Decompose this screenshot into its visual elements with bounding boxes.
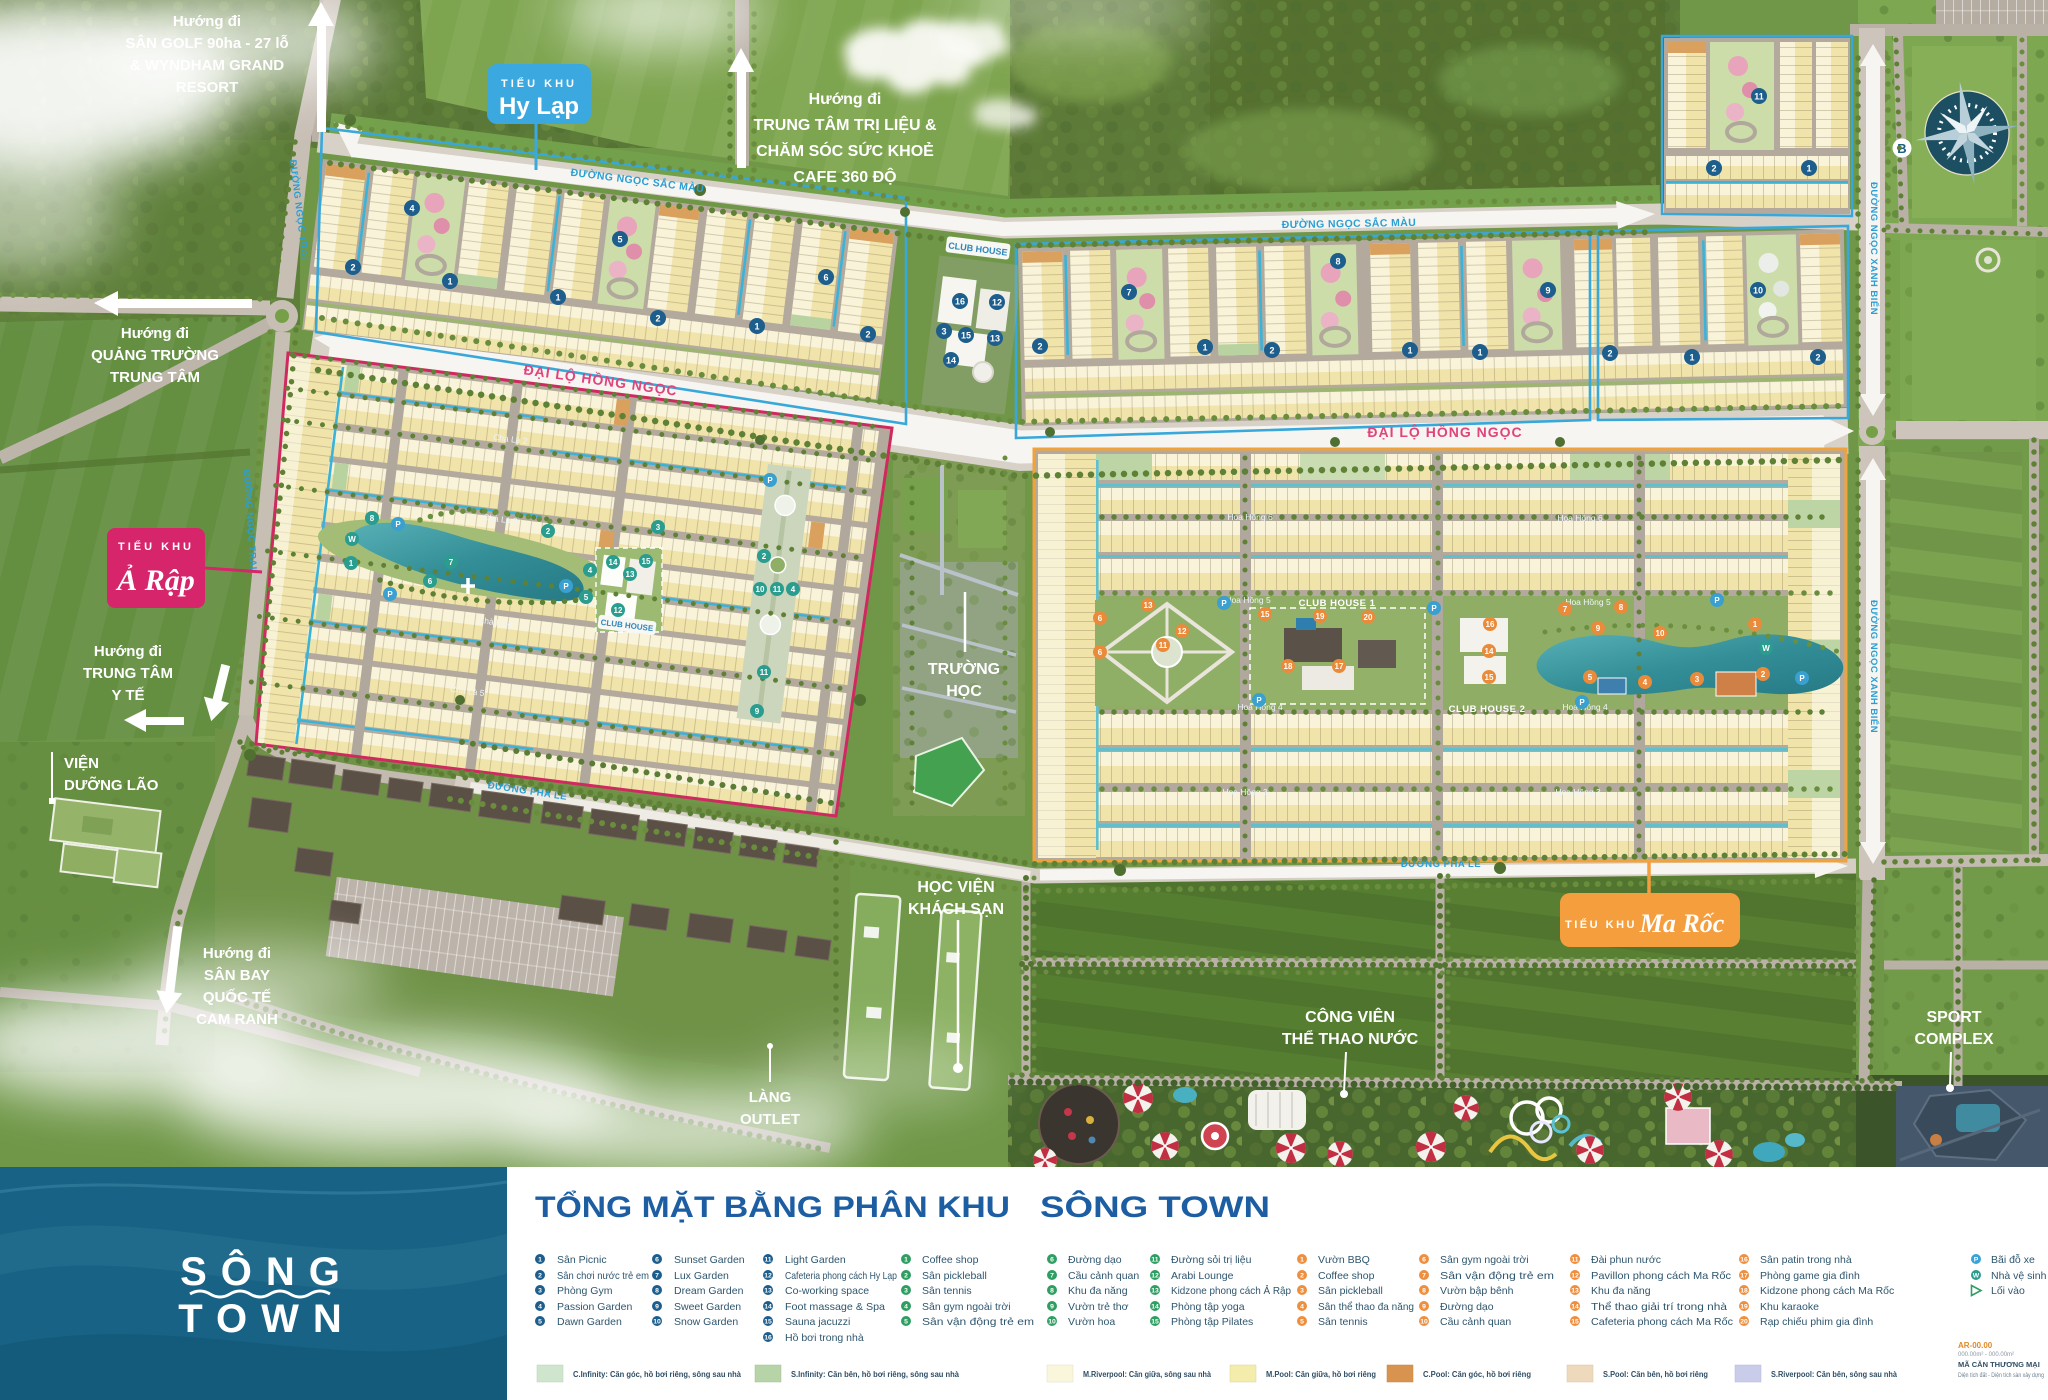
svg-text:5: 5: [617, 235, 622, 245]
svg-text:P: P: [1431, 604, 1437, 613]
svg-text:HỌC: HỌC: [946, 683, 982, 700]
svg-text:8: 8: [1050, 1287, 1054, 1294]
svg-text:5: 5: [538, 1318, 542, 1325]
svg-text:8: 8: [655, 1287, 659, 1294]
svg-text:Khu karaoke: Khu karaoke: [1760, 1301, 1819, 1313]
svg-text:5: 5: [1300, 1318, 1304, 1325]
svg-text:14: 14: [1485, 647, 1494, 656]
svg-text:2: 2: [1300, 1272, 1304, 1279]
svg-text:S.Riverpool: Căn bên, sông sau: S.Riverpool: Căn bên, sông sau nhà: [1771, 1370, 1898, 1379]
svg-text:3: 3: [656, 523, 661, 532]
svg-text:ĐƯỜNG NGỌC XANH BIỂN: ĐƯỜNG NGỌC XANH BIỂN: [1868, 600, 1880, 733]
svg-text:20: 20: [1740, 1318, 1748, 1325]
svg-text:QUẢNG TRƯỜNG: QUẢNG TRƯỜNG: [91, 346, 219, 364]
svg-text:13: 13: [990, 334, 1000, 344]
svg-text:Bãi đỗ xe: Bãi đỗ xe: [1991, 1253, 2035, 1266]
svg-text:8: 8: [370, 514, 375, 523]
svg-text:SPORT: SPORT: [1926, 1009, 1981, 1026]
svg-text:SÔNG: SÔNG: [180, 1248, 354, 1294]
svg-text:17: 17: [1335, 662, 1344, 671]
svg-text:19: 19: [1740, 1303, 1748, 1310]
svg-text:2: 2: [1607, 349, 1612, 359]
svg-text:4: 4: [904, 1303, 908, 1310]
svg-text:Kidzone phong cách Ma Rốc: Kidzone phong cách Ma Rốc: [1760, 1285, 1894, 1297]
svg-text:Lux Garden: Lux Garden: [674, 1270, 729, 1282]
svg-text:2: 2: [1037, 342, 1042, 352]
svg-text:Arabi Lounge: Arabi Lounge: [1171, 1270, 1234, 1282]
svg-text:11: 11: [764, 1256, 771, 1263]
svg-text:CAFE 360 ĐỘ: CAFE 360 ĐỘ: [793, 167, 896, 186]
svg-text:Hướng đi: Hướng đi: [203, 945, 271, 962]
svg-text:Hoa Hồng 5: Hoa Hồng 5: [1565, 597, 1611, 607]
svg-text:13: 13: [764, 1287, 772, 1294]
svg-text:TOWN: TOWN: [178, 1297, 355, 1341]
svg-text:ĐƯỜNG NGỌC XANH BIỂN: ĐƯỜNG NGỌC XANH BIỂN: [1868, 182, 1880, 315]
svg-text:SÔNG TOWN: SÔNG TOWN: [1040, 1190, 1270, 1224]
svg-text:1: 1: [555, 293, 560, 303]
svg-text:P: P: [1714, 596, 1720, 605]
svg-text:OUTLET: OUTLET: [740, 1111, 800, 1128]
svg-text:Sauna jacuzzi: Sauna jacuzzi: [785, 1316, 850, 1328]
svg-text:P: P: [767, 476, 773, 485]
svg-text:2: 2: [1269, 346, 1274, 356]
svg-text:10: 10: [653, 1318, 661, 1325]
svg-text:3: 3: [538, 1287, 542, 1294]
svg-text:10: 10: [1656, 629, 1665, 638]
svg-text:DƯỠNG LÃO: DƯỠNG LÃO: [64, 776, 159, 794]
svg-text:Khu đa năng: Khu đa năng: [1591, 1285, 1651, 1297]
svg-text:8: 8: [1619, 603, 1624, 612]
svg-text:CÔNG VIÊN: CÔNG VIÊN: [1305, 1007, 1395, 1026]
svg-text:Hồ bơi trong nhà: Hồ bơi trong nhà: [785, 1332, 864, 1344]
svg-text:2: 2: [1761, 670, 1766, 679]
svg-text:C.Infinity: Căn góc, hồ bơi ri: C.Infinity: Căn góc, hồ bơi riêng, sông …: [573, 1370, 742, 1379]
svg-text:16: 16: [955, 297, 965, 307]
svg-text:P: P: [1256, 696, 1262, 705]
svg-text:Hướng đi: Hướng đi: [173, 13, 241, 30]
svg-text:18: 18: [1740, 1287, 1748, 1294]
svg-text:QUỐC TẾ: QUỐC TẾ: [203, 988, 271, 1006]
svg-text:15: 15: [1485, 673, 1494, 682]
svg-text:& WYNDHAM GRAND: & WYNDHAM GRAND: [130, 57, 284, 74]
svg-text:Sân chơi nước trẻ em: Sân chơi nước trẻ em: [557, 1270, 649, 1282]
svg-text:Light Garden: Light Garden: [785, 1254, 846, 1266]
svg-text:Hướng đi: Hướng đi: [809, 91, 882, 108]
svg-text:Đường dạo: Đường dạo: [1440, 1301, 1494, 1313]
svg-text:13: 13: [626, 570, 635, 579]
svg-text:Sân gym ngoài trời: Sân gym ngoài trời: [922, 1301, 1011, 1313]
svg-text:2: 2: [1815, 353, 1820, 363]
svg-text:TIỂU KHU: TIỂU KHU: [501, 77, 577, 90]
svg-text:7: 7: [1563, 605, 1568, 614]
svg-text:4: 4: [409, 204, 414, 214]
svg-text:15: 15: [1571, 1318, 1579, 1325]
svg-text:1: 1: [1407, 346, 1412, 356]
svg-text:3: 3: [1300, 1287, 1304, 1294]
svg-text:1: 1: [1477, 348, 1482, 358]
svg-text:TRUNG TÂM TRỊ LIỆU &: TRUNG TÂM TRỊ LIỆU &: [753, 115, 937, 134]
svg-text:8: 8: [1335, 257, 1340, 267]
svg-text:Y TẾ: Y TẾ: [111, 687, 144, 704]
svg-text:15: 15: [642, 557, 651, 566]
svg-text:12: 12: [614, 606, 623, 615]
svg-text:Hướng đi: Hướng đi: [94, 643, 162, 660]
svg-text:Sân vận động trẻ em: Sân vận động trẻ em: [1440, 1270, 1554, 1282]
svg-text:12: 12: [992, 298, 1002, 308]
svg-text:16: 16: [764, 1334, 772, 1341]
svg-text:Đường sỏi trị liệu: Đường sỏi trị liệu: [1171, 1254, 1252, 1266]
svg-text:P: P: [387, 590, 393, 599]
svg-text:6: 6: [428, 577, 433, 586]
svg-text:5: 5: [1588, 673, 1593, 682]
svg-text:Cafeteria phong cách Ma Rốc: Cafeteria phong cách Ma Rốc: [1591, 1316, 1733, 1328]
svg-text:1: 1: [349, 559, 354, 568]
svg-text:Cầu cảnh quan: Cầu cảnh quan: [1440, 1316, 1511, 1328]
svg-text:Sân thể thao đa năng: Sân thể thao đa năng: [1318, 1301, 1414, 1313]
svg-text:14: 14: [1151, 1303, 1159, 1310]
svg-text:Sân patin trong nhà: Sân patin trong nhà: [1760, 1254, 1852, 1266]
svg-text:1: 1: [904, 1256, 908, 1263]
svg-text:P: P: [1799, 674, 1805, 683]
svg-text:13: 13: [1144, 601, 1153, 610]
svg-text:11: 11: [760, 668, 769, 677]
svg-text:ĐƯỜNG PHA LÊ: ĐƯỜNG PHA LÊ: [1401, 858, 1481, 870]
svg-text:Phòng tập Pilates: Phòng tập Pilates: [1171, 1316, 1253, 1328]
svg-text:14: 14: [946, 356, 956, 366]
svg-text:TRUNG TÂM: TRUNG TÂM: [83, 664, 173, 682]
svg-text:3: 3: [1695, 675, 1700, 684]
svg-text:Hoa Hồng 5: Hoa Hồng 5: [1225, 595, 1271, 605]
svg-text:9: 9: [1545, 286, 1550, 296]
svg-text:12: 12: [1178, 627, 1187, 636]
svg-text:6: 6: [655, 1256, 659, 1263]
svg-text:S.Infinity: Căn bên, hồ bơi ri: S.Infinity: Căn bên, hồ bơi riêng, sông …: [791, 1370, 960, 1379]
svg-text:4: 4: [588, 566, 593, 575]
svg-text:Hy Lạp: Hy Lạp: [499, 93, 579, 120]
svg-text:W: W: [1762, 644, 1770, 653]
svg-text:RESORT: RESORT: [176, 79, 239, 96]
svg-text:5: 5: [904, 1318, 908, 1325]
svg-text:2: 2: [538, 1272, 542, 1279]
svg-text:Pavillon phong cách Ma Rốc: Pavillon phong cách Ma Rốc: [1591, 1270, 1731, 1282]
svg-text:9: 9: [1050, 1303, 1054, 1310]
svg-text:5: 5: [584, 593, 589, 602]
svg-text:Sân pickleball: Sân pickleball: [1318, 1285, 1383, 1297]
svg-text:Kidzone phong cách Ả Rập: Kidzone phong cách Ả Rập: [1171, 1284, 1291, 1297]
svg-text:Ma Rốc: Ma Rốc: [1639, 909, 1725, 938]
svg-text:3: 3: [941, 327, 946, 337]
svg-text:SÂN GOLF 90ha - 27 lỗ: SÂN GOLF 90ha - 27 lỗ: [125, 34, 288, 52]
svg-text:9: 9: [1596, 624, 1601, 633]
svg-text:7: 7: [1422, 1272, 1426, 1279]
svg-text:11: 11: [1754, 92, 1764, 102]
svg-text:2: 2: [865, 330, 870, 340]
svg-text:Sân vận động trẻ em: Sân vận động trẻ em: [922, 1316, 1034, 1328]
svg-text:ĐẠI LỘ HỒNG NGỌC: ĐẠI LỘ HỒNG NGỌC: [1367, 423, 1522, 440]
svg-text:Sunset Garden: Sunset Garden: [674, 1254, 745, 1266]
svg-text:10: 10: [1420, 1318, 1428, 1325]
svg-text:15: 15: [1261, 610, 1270, 619]
svg-text:18: 18: [1284, 662, 1293, 671]
svg-text:2: 2: [762, 552, 767, 561]
svg-text:TIỂU KHU: TIỂU KHU: [118, 540, 194, 553]
svg-text:20: 20: [1364, 613, 1373, 622]
svg-text:Diện tích đất - Diện tích sàn: Diện tích đất - Diện tích sàn xây dựng: [1958, 1373, 2044, 1379]
svg-text:THỂ THAO NƯỚC: THỂ THAO NƯỚC: [1282, 1029, 1419, 1048]
svg-text:2: 2: [350, 263, 355, 273]
svg-text:TỔNG MẶT BẰNG PHÂN KHU: TỔNG MẶT BẰNG PHÂN KHU: [535, 1190, 1010, 1224]
svg-text:VIỆN: VIỆN: [64, 754, 99, 772]
svg-text:Vườn trẻ thơ: Vườn trẻ thơ: [1068, 1301, 1129, 1313]
svg-text:15: 15: [961, 331, 971, 341]
svg-text:Cầu cảnh quan: Cầu cảnh quan: [1068, 1270, 1139, 1282]
svg-text:Cafeteria phong cách Hy Lạp: Cafeteria phong cách Hy Lạp: [785, 1270, 897, 1282]
svg-text:TRƯỜNG: TRƯỜNG: [928, 659, 1000, 678]
svg-text:2: 2: [1711, 164, 1716, 174]
svg-text:COMPLEX: COMPLEX: [1914, 1031, 1993, 1048]
svg-text:Hoa Hồng 6: Hoa Hồng 6: [1227, 512, 1273, 522]
svg-text:15: 15: [764, 1318, 772, 1325]
svg-text:M.Riverpool: Căn giữa, sông sa: M.Riverpool: Căn giữa, sông sau nhà: [1083, 1370, 1211, 1379]
svg-text:11: 11: [773, 585, 782, 594]
svg-text:CLUB HOUSE 1: CLUB HOUSE 1: [1299, 598, 1376, 609]
svg-text:P: P: [1579, 698, 1585, 707]
svg-text:12: 12: [1151, 1272, 1159, 1279]
svg-text:7: 7: [449, 558, 454, 567]
svg-text:14: 14: [764, 1303, 772, 1310]
svg-text:HỌC VIỆN: HỌC VIỆN: [917, 877, 994, 896]
svg-text:7: 7: [1126, 288, 1131, 298]
svg-text:W: W: [348, 535, 356, 544]
svg-text:Thể thao giải trí trong nhà: Thể thao giải trí trong nhà: [1591, 1301, 1727, 1313]
svg-text:LÀNG: LÀNG: [749, 1089, 792, 1106]
svg-text:12: 12: [764, 1272, 772, 1279]
svg-text:Nhà vệ sinh: Nhà vệ sinh: [1991, 1270, 2047, 1282]
svg-text:9: 9: [755, 707, 760, 716]
svg-text:M.Pool: Căn giữa, hồ bơi riêng: M.Pool: Căn giữa, hồ bơi riêng: [1266, 1370, 1376, 1379]
svg-text:2: 2: [904, 1272, 908, 1279]
svg-text:Lối vào: Lối vào: [1991, 1285, 2025, 1297]
svg-text:6: 6: [1098, 614, 1103, 623]
svg-text:TRUNG TÂM: TRUNG TÂM: [110, 368, 200, 386]
svg-text:10: 10: [1048, 1318, 1056, 1325]
svg-text:14: 14: [1571, 1303, 1579, 1310]
svg-text:Hướng đi: Hướng đi: [121, 325, 189, 342]
svg-text:Đài phun nước: Đài phun nước: [1591, 1254, 1661, 1266]
svg-text:7: 7: [655, 1272, 659, 1279]
svg-text:Co-working space: Co-working space: [785, 1285, 869, 1297]
svg-text:P: P: [1974, 1256, 1979, 1263]
svg-text:17: 17: [1740, 1272, 1748, 1279]
svg-text:CLUB HOUSE 2: CLUB HOUSE 2: [1449, 704, 1526, 715]
svg-text:4: 4: [538, 1303, 542, 1310]
svg-text:3: 3: [904, 1287, 908, 1294]
svg-text:13: 13: [1151, 1287, 1159, 1294]
svg-text:Dream Garden: Dream Garden: [674, 1285, 744, 1297]
svg-text:S.Pool: Căn bên, hồ bơi riêng: S.Pool: Căn bên, hồ bơi riêng: [1603, 1370, 1708, 1379]
svg-text:AR-00.00: AR-00.00: [1958, 1341, 1993, 1350]
svg-text:1: 1: [1753, 620, 1758, 629]
svg-text:Sân Picnic: Sân Picnic: [557, 1254, 607, 1266]
svg-text:Phòng Gym: Phòng Gym: [557, 1285, 613, 1297]
svg-text:ĐƯỜNG NGỌC SẮC MÀU: ĐƯỜNG NGỌC SẮC MÀU: [1282, 216, 1417, 231]
svg-text:Hoa Hồng 3: Hoa Hồng 3: [1222, 787, 1268, 797]
svg-text:4: 4: [791, 585, 796, 594]
svg-text:4: 4: [1643, 678, 1648, 687]
svg-text:6: 6: [1050, 1256, 1054, 1263]
svg-text:8: 8: [1422, 1287, 1426, 1294]
svg-text:Phòng tập yoga: Phòng tập yoga: [1171, 1301, 1245, 1313]
svg-text:000.00m² - 000.00m²: 000.00m² - 000.00m²: [1958, 1352, 2014, 1358]
svg-text:6: 6: [823, 273, 828, 283]
svg-text:11: 11: [1159, 641, 1168, 650]
svg-text:Rạp chiếu phim gia đình: Rạp chiếu phim gia đình: [1760, 1316, 1873, 1328]
svg-text:6: 6: [1422, 1256, 1426, 1263]
svg-text:P: P: [1221, 599, 1227, 608]
svg-text:Sân tennis: Sân tennis: [1318, 1316, 1368, 1328]
svg-text:Dawn Garden: Dawn Garden: [557, 1316, 622, 1328]
svg-text:1: 1: [447, 277, 452, 287]
svg-text:9: 9: [1422, 1303, 1426, 1310]
svg-text:Snow Garden: Snow Garden: [674, 1316, 738, 1328]
svg-text:11: 11: [1151, 1256, 1158, 1263]
svg-text:SÂN BAY: SÂN BAY: [204, 966, 270, 984]
svg-text:TIỂU KHU: TIỂU KHU: [1565, 918, 1637, 931]
svg-text:C.Pool: Căn góc, hồ bơi riêng: C.Pool: Căn góc, hồ bơi riêng: [1423, 1370, 1531, 1379]
svg-text:1: 1: [1806, 164, 1811, 174]
svg-text:CHĂM SÓC SỨC KHOẺ: CHĂM SÓC SỨC KHOẺ: [756, 141, 934, 160]
svg-text:16: 16: [1486, 620, 1495, 629]
svg-text:11: 11: [1571, 1256, 1578, 1263]
svg-text:7: 7: [1050, 1272, 1054, 1279]
svg-text:Đường dạo: Đường dạo: [1068, 1254, 1122, 1266]
svg-text:Vườn bập bênh: Vườn bập bênh: [1440, 1285, 1514, 1297]
svg-text:Foot massage & Spa: Foot massage & Spa: [785, 1301, 885, 1313]
svg-text:CAM RANH: CAM RANH: [196, 1011, 278, 1028]
svg-text:12: 12: [1571, 1272, 1579, 1279]
svg-text:1: 1: [1300, 1256, 1304, 1263]
svg-text:Khu đa năng: Khu đa năng: [1068, 1285, 1128, 1297]
svg-text:W: W: [1973, 1272, 1980, 1279]
svg-text:4: 4: [1300, 1303, 1304, 1310]
svg-text:Passion Garden: Passion Garden: [557, 1301, 632, 1313]
svg-text:P: P: [395, 520, 401, 529]
svg-text:Hoa Hồng 6: Hoa Hồng 6: [1557, 513, 1603, 523]
svg-text:1: 1: [538, 1256, 542, 1263]
svg-text:16: 16: [1740, 1256, 1748, 1263]
svg-text:1: 1: [1689, 353, 1694, 363]
svg-text:10: 10: [756, 585, 765, 594]
svg-text:13: 13: [1571, 1287, 1579, 1294]
svg-text:P: P: [563, 582, 569, 591]
svg-text:Phòng game gia đình: Phòng game gia đình: [1760, 1270, 1860, 1282]
svg-text:Ả Rập: Ả Rập: [115, 564, 195, 597]
svg-text:2: 2: [655, 314, 660, 324]
svg-text:Coffee shop: Coffee shop: [1318, 1270, 1375, 1282]
svg-text:Vườn hoa: Vườn hoa: [1068, 1316, 1115, 1328]
svg-text:1: 1: [1202, 343, 1207, 353]
svg-text:Sân pickleball: Sân pickleball: [922, 1270, 987, 1282]
svg-text:10: 10: [1753, 286, 1763, 296]
svg-text:Vườn BBQ: Vườn BBQ: [1318, 1254, 1370, 1266]
svg-text:Hoa Hồng 3: Hoa Hồng 3: [1555, 787, 1601, 797]
svg-text:Sân gym ngoài trời: Sân gym ngoài trời: [1440, 1254, 1529, 1266]
svg-text:1: 1: [754, 322, 759, 332]
svg-text:15: 15: [1151, 1318, 1159, 1325]
svg-text:Sweet Garden: Sweet Garden: [674, 1301, 741, 1313]
svg-text:9: 9: [655, 1303, 659, 1310]
svg-text:Sân tennis: Sân tennis: [922, 1285, 972, 1297]
svg-text:19: 19: [1316, 612, 1325, 621]
svg-text:14: 14: [609, 558, 618, 567]
svg-text:6: 6: [1098, 648, 1103, 657]
svg-text:Coffee shop: Coffee shop: [922, 1254, 979, 1266]
svg-text:KHÁCH SẠN: KHÁCH SẠN: [908, 899, 1004, 918]
svg-text:2: 2: [546, 527, 551, 536]
svg-text:MÃ CĂN THƯƠNG MẠI: MÃ CĂN THƯƠNG MẠI: [1958, 1360, 2040, 1369]
